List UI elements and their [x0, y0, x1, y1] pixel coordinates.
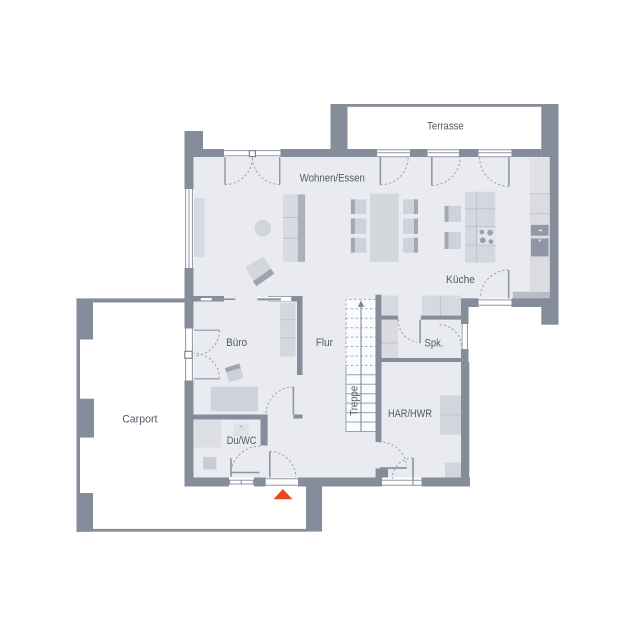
svg-text:Carport: Carport — [122, 413, 158, 425]
svg-text:Du/WC: Du/WC — [227, 435, 257, 447]
svg-text:Wohnen/Essen: Wohnen/Essen — [300, 173, 365, 185]
svg-text:Küche: Küche — [446, 274, 475, 286]
svg-text:Büro: Büro — [226, 337, 247, 349]
svg-text:Treppe: Treppe — [349, 386, 361, 416]
svg-text:Flur: Flur — [316, 337, 333, 349]
svg-text:HAR/HWR: HAR/HWR — [388, 408, 432, 420]
svg-text:Spk.: Spk. — [425, 337, 444, 349]
svg-text:Terrasse: Terrasse — [427, 121, 464, 133]
